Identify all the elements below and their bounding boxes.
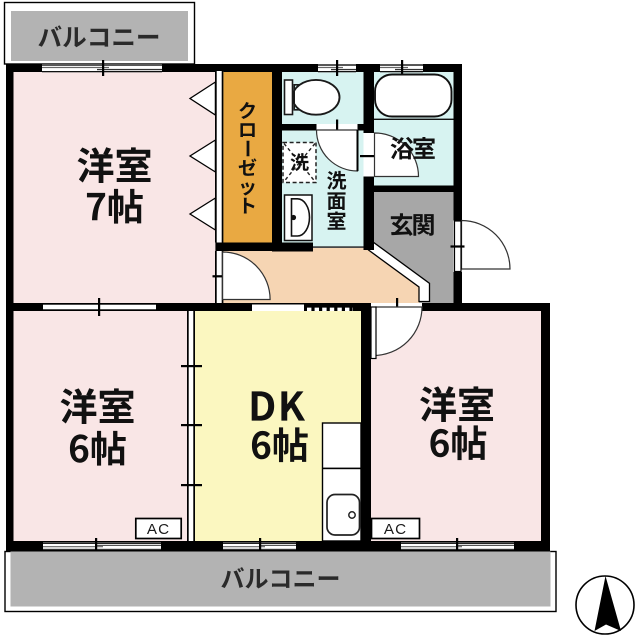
svg-text:AC: AC	[384, 521, 407, 538]
svg-text:AC: AC	[147, 521, 170, 538]
